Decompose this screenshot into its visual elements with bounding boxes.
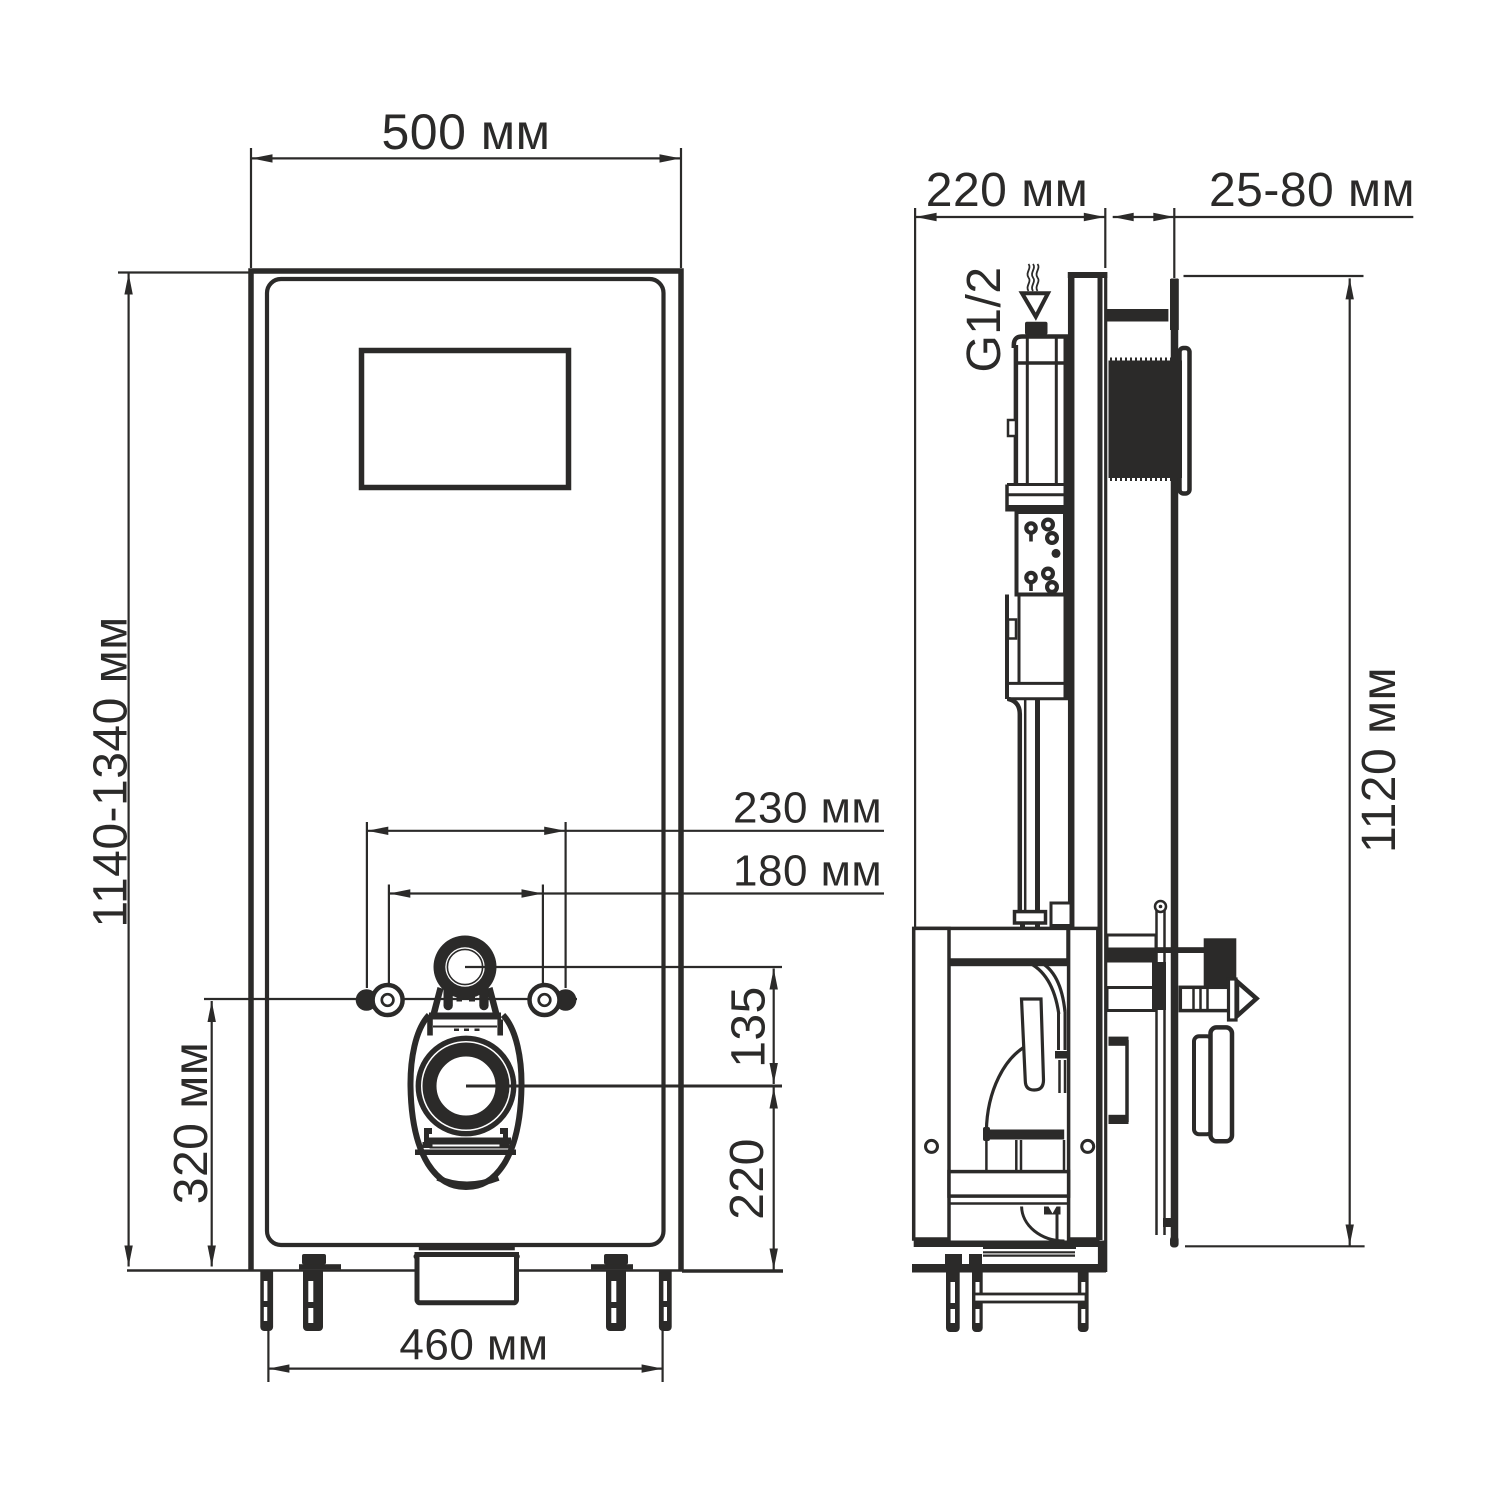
- svg-text:320 мм: 320 мм: [165, 1042, 218, 1204]
- svg-text:25-80 мм: 25-80 мм: [1209, 164, 1415, 217]
- svg-text:1120 мм: 1120 мм: [1353, 667, 1406, 853]
- svg-text:1140-1340 мм: 1140-1340 мм: [85, 616, 138, 927]
- svg-text:135: 135: [723, 986, 776, 1068]
- svg-text:180 мм: 180 мм: [733, 847, 882, 896]
- svg-text:220 мм: 220 мм: [926, 164, 1088, 217]
- svg-text:G1/2: G1/2: [958, 266, 1011, 372]
- svg-text:220: 220: [721, 1138, 774, 1220]
- svg-text:500 мм: 500 мм: [381, 104, 550, 160]
- svg-text:460 мм: 460 мм: [399, 1321, 548, 1370]
- svg-text:230 мм: 230 мм: [733, 784, 882, 833]
